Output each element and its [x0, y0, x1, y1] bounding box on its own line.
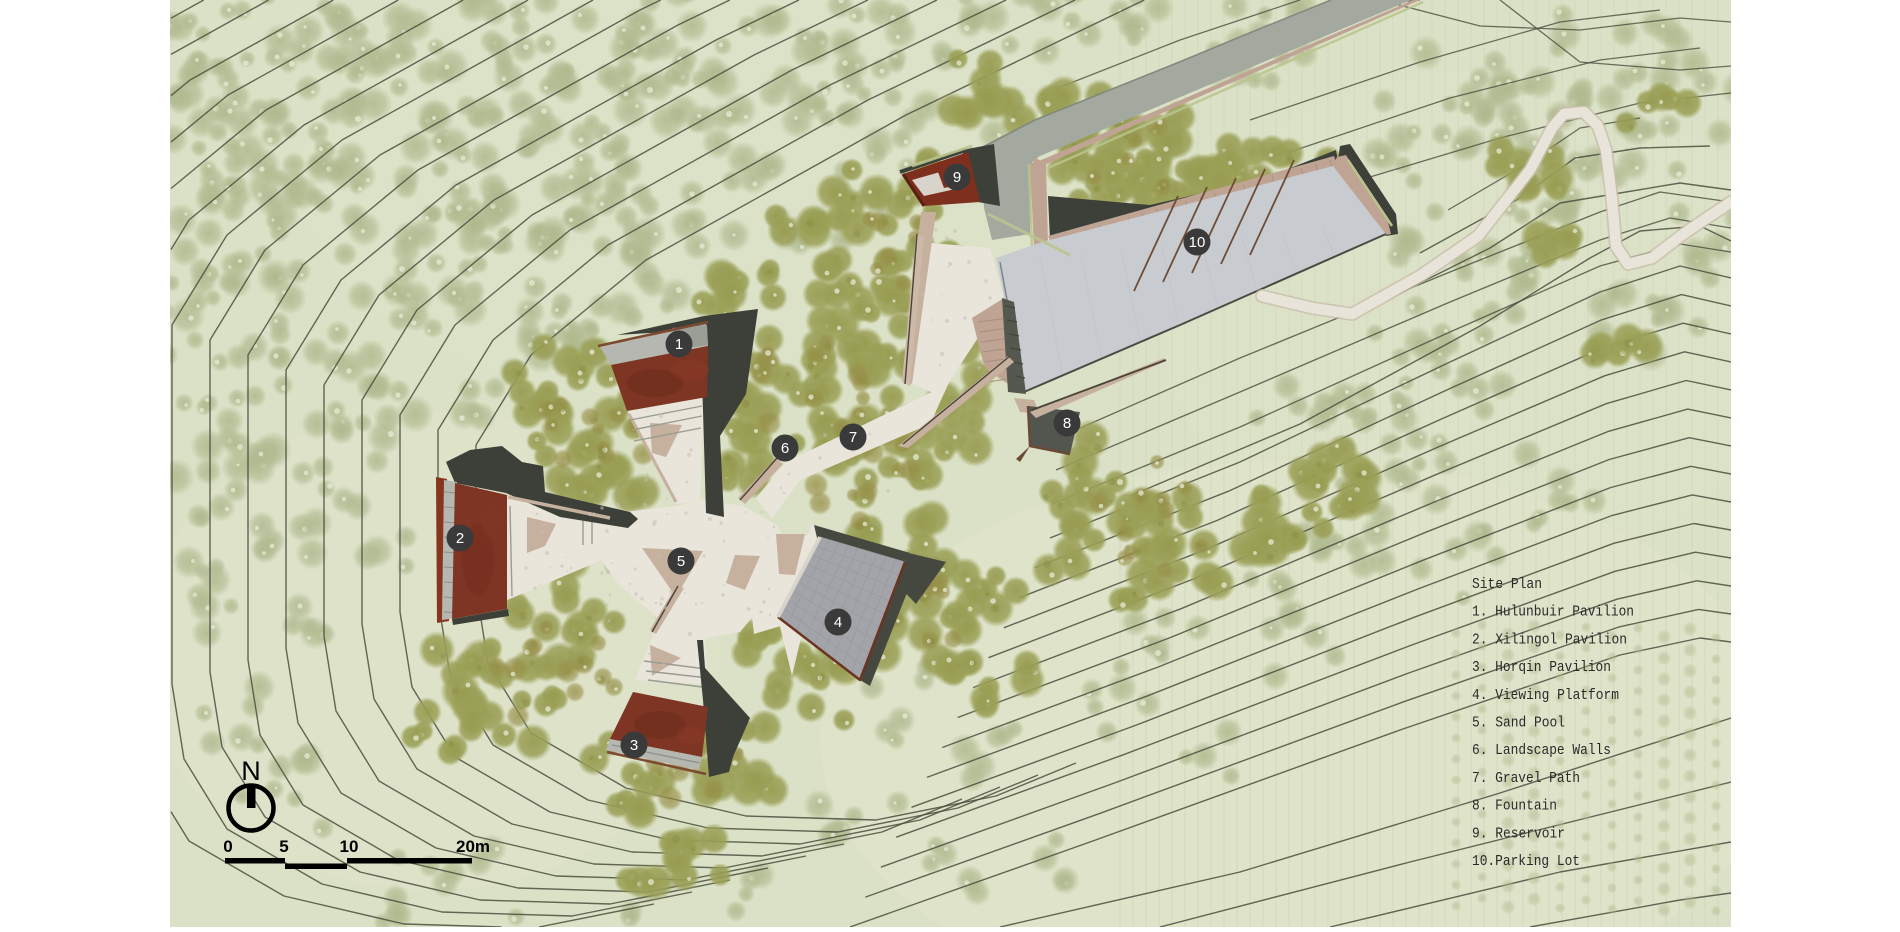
svg-text:6: 6: [781, 440, 789, 457]
svg-text:20m: 20m: [456, 837, 490, 856]
svg-text:9. Reservoir: 9. Reservoir: [1472, 826, 1565, 842]
svg-text:7: 7: [849, 429, 857, 446]
svg-text:6. Landscape Walls: 6. Landscape Walls: [1472, 743, 1611, 759]
svg-text:9: 9: [953, 169, 961, 186]
svg-text:3. Horqin Pavilion: 3. Horqin Pavilion: [1472, 660, 1611, 676]
svg-text:4. Viewing Platform: 4. Viewing Platform: [1472, 688, 1619, 704]
svg-text:3: 3: [630, 737, 638, 754]
svg-text:8: 8: [1063, 415, 1071, 432]
svg-text:1. Hulunbuir Pavilion: 1. Hulunbuir Pavilion: [1472, 605, 1634, 621]
svg-text:N: N: [241, 756, 261, 786]
svg-text:2: 2: [456, 530, 464, 547]
svg-text:7. Gravel Path: 7. Gravel Path: [1472, 771, 1580, 787]
svg-text:Site Plan: Site Plan: [1472, 577, 1542, 593]
svg-text:10: 10: [1189, 234, 1206, 251]
svg-text:10: 10: [340, 837, 359, 856]
svg-text:4: 4: [834, 614, 842, 631]
svg-text:2. Xilingol Pavilion: 2. Xilingol Pavilion: [1472, 632, 1627, 648]
svg-text:1: 1: [675, 336, 683, 353]
svg-text:5. Sand Pool: 5. Sand Pool: [1472, 716, 1565, 732]
svg-text:0: 0: [223, 837, 232, 856]
svg-text:5: 5: [677, 553, 685, 570]
svg-text:8. Fountain: 8. Fountain: [1472, 799, 1557, 815]
svg-text:5: 5: [279, 837, 288, 856]
svg-text:10.Parking Lot: 10.Parking Lot: [1472, 854, 1580, 870]
